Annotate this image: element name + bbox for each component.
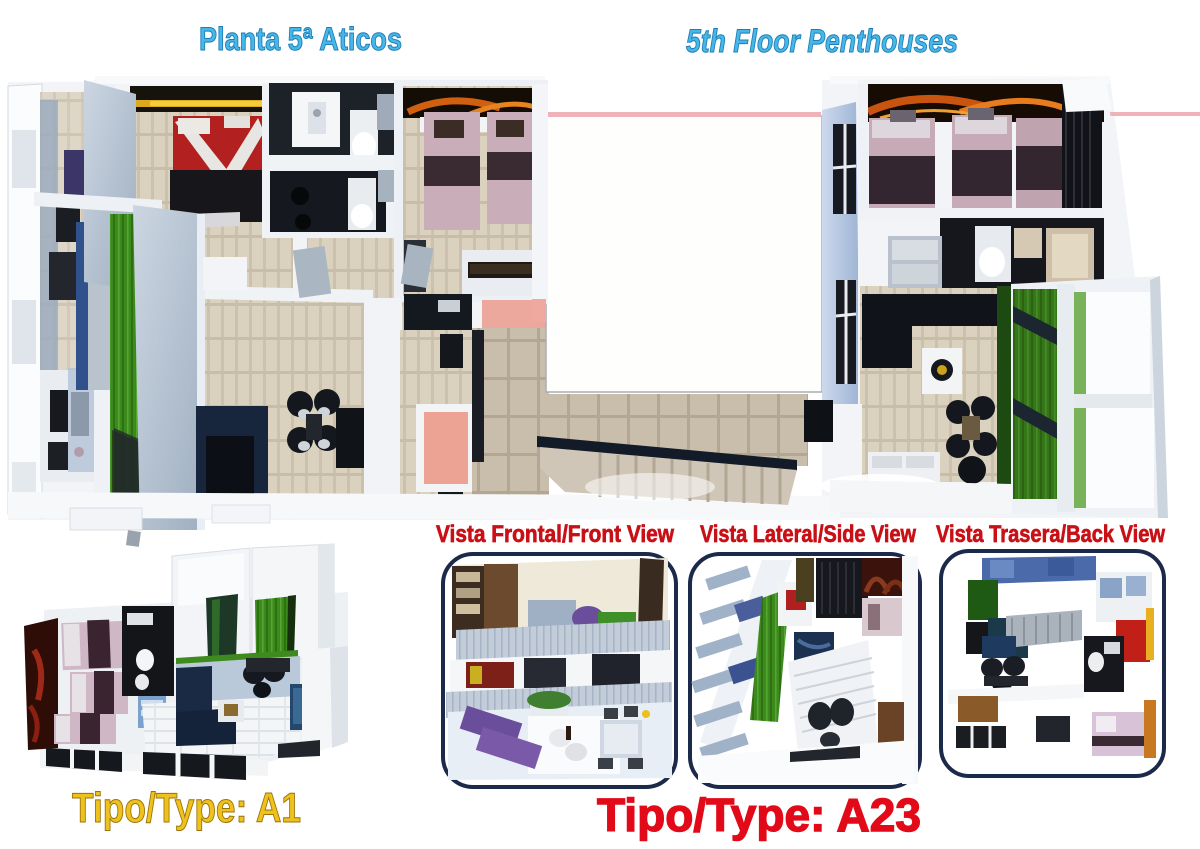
svg-text:Planta 5ª Aticos: Planta 5ª Aticos [199, 21, 402, 57]
svg-text:Vista Frontal/Front View: Vista Frontal/Front View [436, 521, 674, 548]
svg-text:Vista Trasera/Back View: Vista Trasera/Back View [936, 521, 1165, 548]
svg-text:Tipo/Type: A1: Tipo/Type: A1 [72, 784, 301, 831]
svg-text:5th Floor Penthouses: 5th Floor Penthouses [686, 23, 958, 59]
svg-text:Vista Lateral/Side View: Vista Lateral/Side View [700, 521, 916, 548]
svg-text:Tipo/Type: A23: Tipo/Type: A23 [597, 789, 921, 841]
